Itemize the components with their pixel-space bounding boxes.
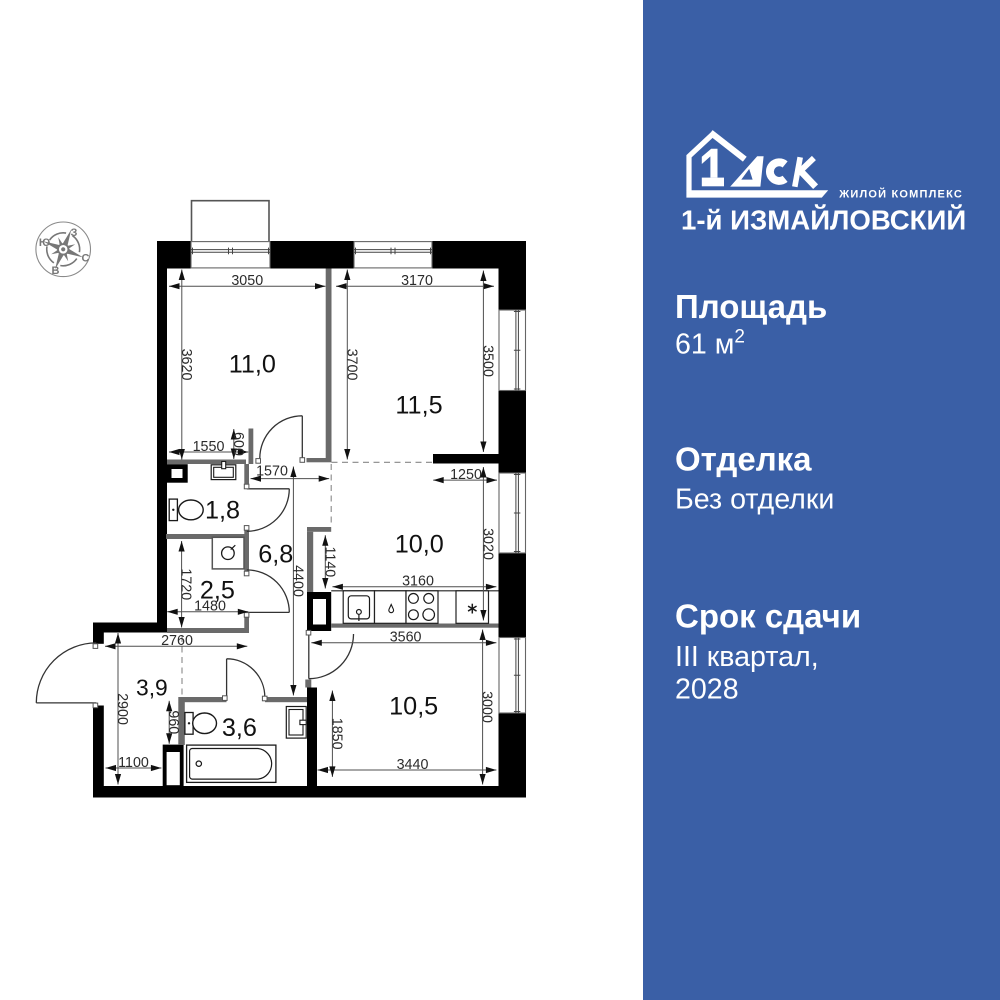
svg-text:3620: 3620 [178, 349, 194, 381]
svg-text:Без отделки: Без отделки [675, 484, 834, 516]
svg-text:1,8: 1,8 [205, 496, 240, 524]
svg-text:10,0: 10,0 [395, 531, 444, 559]
svg-text:3700: 3700 [343, 349, 359, 381]
svg-text:В: В [52, 265, 60, 277]
svg-text:1100: 1100 [118, 755, 149, 771]
svg-text:2760: 2760 [161, 633, 193, 649]
svg-text:1250: 1250 [450, 467, 482, 483]
svg-text:Ю: Ю [39, 237, 50, 249]
svg-text:960: 960 [165, 710, 181, 734]
svg-text:2028: 2028 [675, 674, 739, 706]
svg-text:2900: 2900 [114, 693, 130, 725]
svg-text:3500: 3500 [479, 345, 495, 377]
svg-text:Площадь: Площадь [675, 288, 827, 325]
svg-text:3,9: 3,9 [136, 675, 168, 701]
svg-text:1720: 1720 [178, 568, 194, 600]
svg-text:3560: 3560 [390, 630, 422, 646]
svg-text:1550: 1550 [193, 439, 225, 455]
svg-text:Отделка: Отделка [675, 441, 812, 478]
svg-text:З: З [71, 227, 78, 239]
svg-text:600: 600 [230, 432, 246, 456]
svg-text:ЖИЛОЙ КОМПЛЕКС: ЖИЛОЙ КОМПЛЕКС [838, 188, 963, 201]
svg-text:С: С [82, 253, 90, 265]
svg-text:1480: 1480 [194, 598, 226, 614]
svg-text:6,8: 6,8 [258, 541, 293, 569]
svg-text:3,6: 3,6 [222, 714, 257, 742]
svg-text:11,0: 11,0 [229, 350, 276, 378]
svg-text:3050: 3050 [231, 273, 263, 289]
svg-text:3160: 3160 [402, 574, 434, 590]
svg-text:III квартал,: III квартал, [675, 641, 819, 673]
svg-text:3170: 3170 [401, 273, 433, 289]
svg-text:3020: 3020 [479, 528, 495, 560]
svg-text:1140: 1140 [321, 546, 337, 577]
svg-text:Срок сдачи: Срок сдачи [675, 598, 861, 635]
svg-text:11,5: 11,5 [395, 392, 442, 420]
svg-text:1850: 1850 [328, 718, 344, 750]
svg-text:1570: 1570 [256, 464, 288, 480]
svg-text:3000: 3000 [479, 691, 495, 723]
svg-text:3440: 3440 [397, 757, 429, 773]
svg-text:10,5: 10,5 [389, 692, 438, 720]
svg-text:4400: 4400 [289, 565, 305, 597]
svg-text:1-й ИЗМАЙЛОВСКИЙ: 1-й ИЗМАЙЛОВСКИЙ [681, 204, 966, 236]
